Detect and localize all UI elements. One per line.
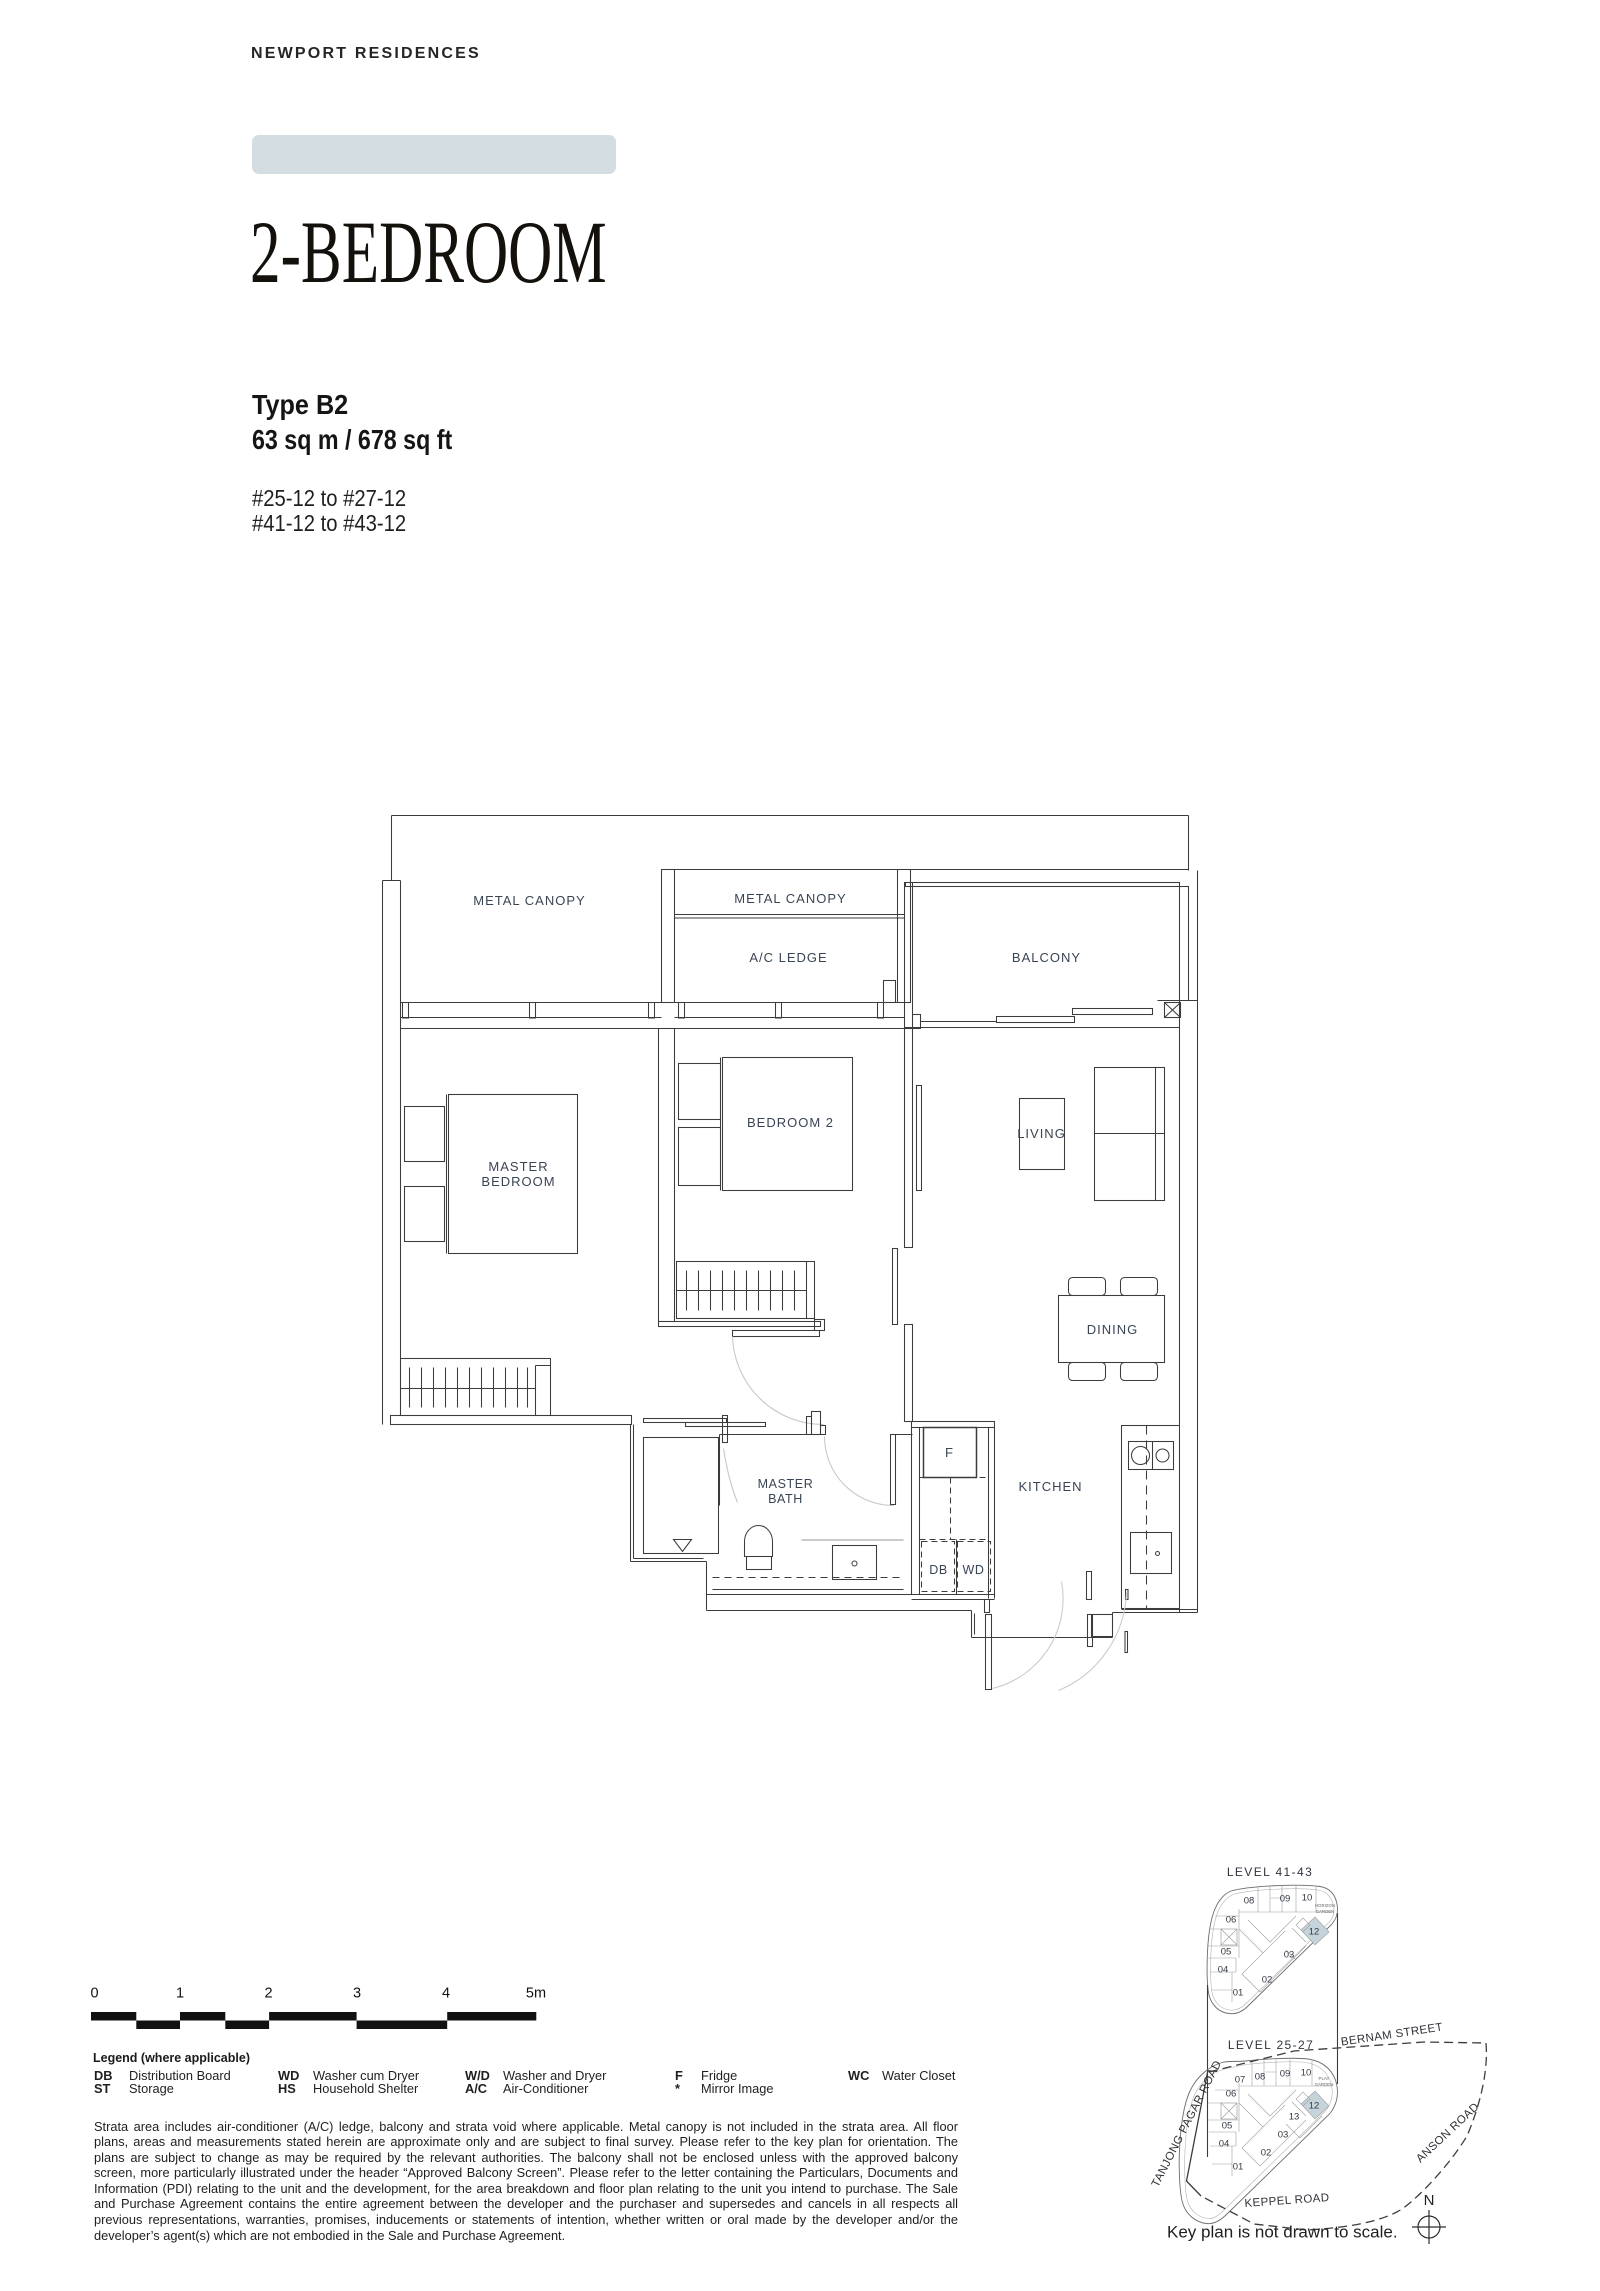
svg-text:LEVEL 25-27: LEVEL 25-27 xyxy=(1228,2038,1314,2052)
svg-text:MASTER: MASTER xyxy=(758,1477,814,1491)
svg-text:2: 2 xyxy=(264,1985,272,2001)
svg-text:07: 07 xyxy=(1235,2075,1246,2086)
svg-text:1: 1 xyxy=(176,1985,184,2001)
svg-text:06: 06 xyxy=(1226,2089,1237,2100)
svg-text:05: 05 xyxy=(1221,1947,1232,1958)
svg-text:09: 09 xyxy=(1280,1894,1291,1905)
svg-text:12: 12 xyxy=(1309,1927,1320,1938)
svg-text:03: 03 xyxy=(1284,1950,1295,1961)
svg-text:GARDEN: GARDEN xyxy=(1315,2082,1334,2087)
svg-text:METAL CANOPY: METAL CANOPY xyxy=(473,893,585,908)
svg-text:0: 0 xyxy=(90,1985,98,2001)
svg-text:4: 4 xyxy=(442,1985,450,2001)
svg-text:01: 01 xyxy=(1233,2162,1244,2173)
svg-text:05: 05 xyxy=(1222,2121,1233,2132)
svg-text:04: 04 xyxy=(1218,1965,1229,1976)
svg-text:LIVING: LIVING xyxy=(1017,1126,1066,1141)
svg-text:08: 08 xyxy=(1255,2072,1266,2083)
svg-text:01: 01 xyxy=(1233,1988,1244,1999)
svg-text:13: 13 xyxy=(1289,2112,1300,2123)
svg-text:LEVEL 41-43: LEVEL 41-43 xyxy=(1227,1865,1313,1879)
svg-text:WD: WD xyxy=(962,1563,984,1577)
svg-text:Key plan is not drawn to scale: Key plan is not drawn to scale. xyxy=(1167,2222,1398,2241)
svg-text:N: N xyxy=(1424,2192,1435,2209)
svg-text:10: 10 xyxy=(1301,2068,1312,2079)
svg-text:02: 02 xyxy=(1261,2148,1272,2159)
svg-text:GARDEN: GARDEN xyxy=(1316,1909,1335,1914)
svg-text:KEPPEL ROAD: KEPPEL ROAD xyxy=(1244,2192,1330,2210)
svg-text:10: 10 xyxy=(1302,1893,1313,1904)
svg-text:METAL CANOPY: METAL CANOPY xyxy=(734,891,846,906)
svg-text:MASTER: MASTER xyxy=(488,1159,548,1174)
svg-text:09: 09 xyxy=(1280,2069,1291,2080)
svg-text:12: 12 xyxy=(1309,2101,1320,2112)
svg-text:DINING: DINING xyxy=(1087,1322,1139,1337)
svg-text:HORIZON: HORIZON xyxy=(1315,1903,1335,1908)
svg-text:F: F xyxy=(945,1445,954,1460)
svg-text:BALCONY: BALCONY xyxy=(1012,950,1081,965)
svg-text:A/C LEDGE: A/C LEDGE xyxy=(749,950,827,965)
svg-text:DB: DB xyxy=(929,1563,948,1577)
svg-text:TANJONG PAGAR ROAD: TANJONG PAGAR ROAD xyxy=(1150,2059,1224,2189)
svg-text:BEDROOM: BEDROOM xyxy=(481,1174,555,1189)
svg-text:02: 02 xyxy=(1262,1975,1273,1986)
svg-text:03: 03 xyxy=(1278,2130,1289,2141)
svg-text:08: 08 xyxy=(1244,1896,1255,1907)
svg-text:5m: 5m xyxy=(526,1985,546,2001)
svg-text:06: 06 xyxy=(1226,1915,1237,1926)
svg-text:ANSON ROAD: ANSON ROAD xyxy=(1414,2101,1482,2165)
svg-text:BEDROOM 2: BEDROOM 2 xyxy=(747,1115,834,1130)
svg-text:04: 04 xyxy=(1219,2139,1230,2150)
svg-text:BATH: BATH xyxy=(768,1492,803,1506)
svg-text:KITCHEN: KITCHEN xyxy=(1018,1479,1082,1494)
svg-text:3: 3 xyxy=(353,1985,361,2001)
svg-text:PLAY: PLAY xyxy=(1319,2076,1330,2081)
